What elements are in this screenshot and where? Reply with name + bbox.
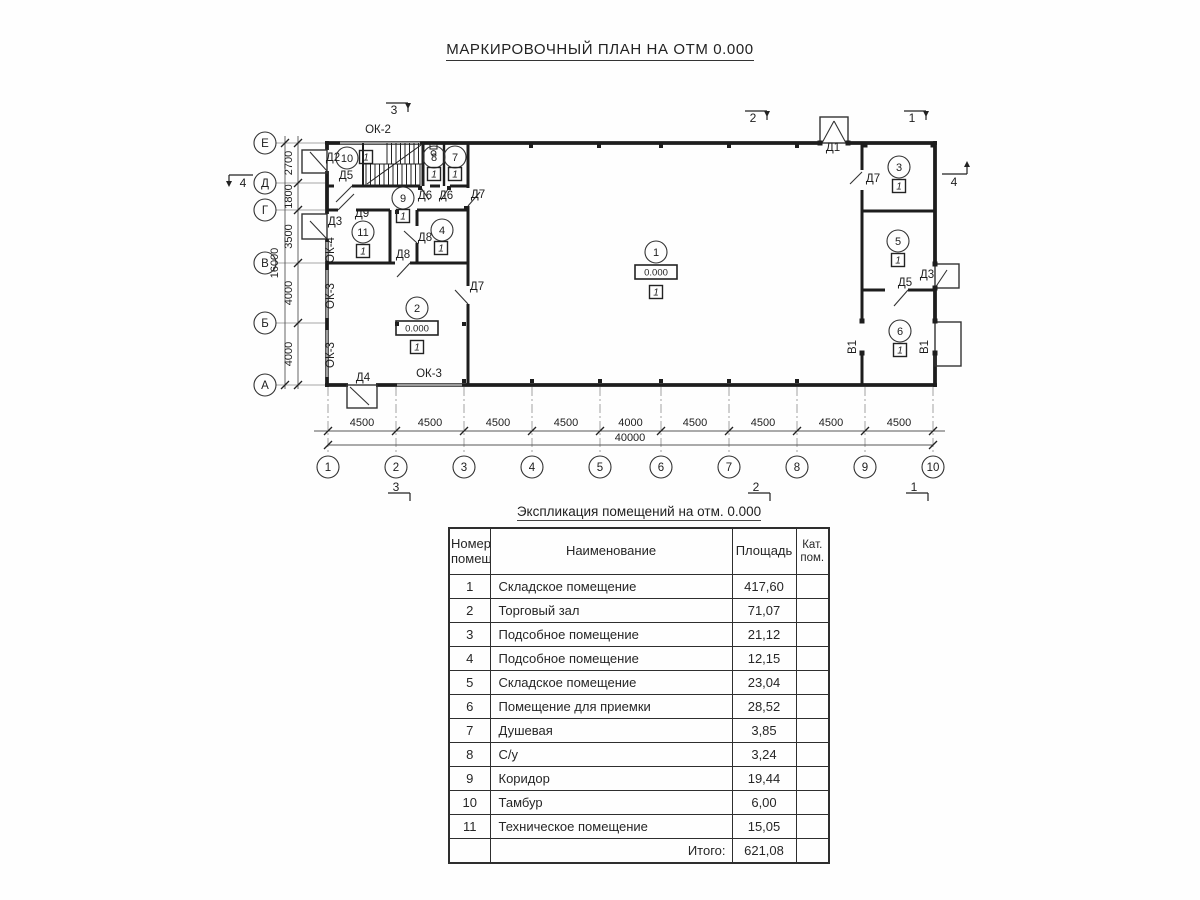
section-mark-arrow	[923, 111, 929, 117]
cell-room-area: 3,85	[732, 719, 796, 743]
section-mark-label: 1	[909, 111, 916, 125]
pilaster-mark	[529, 144, 533, 148]
room-number: 4	[439, 225, 445, 237]
dim-total-height: 16000	[269, 248, 281, 279]
cell-room-name: С/у	[490, 743, 732, 767]
door-label: Д1	[826, 142, 840, 154]
schedule-header-row: Номерпомещ.НаименованиеПлощадьКат.пом.	[449, 528, 829, 575]
section-mark-arrow	[764, 111, 770, 117]
cell-room-number: 9	[449, 767, 490, 791]
cell-room-number: 4	[449, 647, 490, 671]
cell-room-category	[796, 695, 829, 719]
section-mark-arrow	[964, 161, 970, 167]
door-label: Д3	[328, 216, 342, 228]
wall-jamb	[860, 319, 865, 324]
cell-room-category	[796, 815, 829, 839]
dim-label: 4000	[283, 281, 295, 305]
door-label: Д6	[439, 190, 453, 202]
col-axis-label: 3	[461, 462, 467, 474]
cell-room-area: 12,15	[732, 647, 796, 671]
cell-room-area: 21,12	[732, 623, 796, 647]
section-mark-arrow	[405, 103, 411, 109]
table-row: 4Подсобное помещение12,15	[449, 647, 829, 671]
wall-jamb	[931, 143, 936, 148]
door-label: Д7	[471, 189, 485, 201]
wall-jamb	[933, 286, 938, 291]
col-axis-label: 7	[726, 462, 732, 474]
table-row: 2Торговый зал71,07	[449, 599, 829, 623]
col-axis-label: 6	[658, 462, 664, 474]
dim-label: 3500	[283, 224, 295, 248]
table-row: 11Техническое помещение15,05	[449, 815, 829, 839]
schedule-title: Экспликация помещений на отм. 0.000	[448, 504, 830, 519]
room-number: 10	[341, 153, 353, 165]
schedule-header: Наименование	[490, 528, 732, 575]
door-label: Д3	[920, 269, 934, 281]
wall-jamb	[846, 141, 851, 146]
pilaster-mark	[659, 379, 663, 383]
cell-room-area: 71,07	[732, 599, 796, 623]
wall-jamb	[860, 351, 865, 356]
wall-jamb	[933, 351, 938, 356]
pilaster-mark	[462, 379, 466, 383]
table-row: 8С/у3,24	[449, 743, 829, 767]
room-marker: 1	[400, 212, 406, 223]
room-marker: 1	[431, 170, 437, 181]
cell-room-number: 6	[449, 695, 490, 719]
dim-label: 4500	[887, 417, 911, 429]
dim-label: 4500	[350, 417, 374, 429]
wall-jamb	[818, 141, 823, 146]
row-axis-label: Д	[261, 178, 269, 190]
cell-room-area: 417,60	[732, 575, 796, 599]
section-mark-label: 3	[391, 103, 398, 117]
col-axis-label: 9	[862, 462, 868, 474]
room-marker: 1	[360, 247, 366, 258]
col-axis-label: 5	[597, 462, 603, 474]
window-label: ОК-3	[325, 342, 337, 368]
room-number: 2	[414, 303, 420, 315]
door-label: Д7	[470, 281, 484, 293]
cell-room-area: 6,00	[732, 791, 796, 815]
table-total-row: Итого:621,08	[449, 839, 829, 864]
cell-room-name: Душевая	[490, 719, 732, 743]
cell-room-name: Подсобное помещение	[490, 647, 732, 671]
wall-jamb	[863, 143, 868, 148]
cell-room-category	[796, 575, 829, 599]
pilaster-mark	[727, 379, 731, 383]
window-label: ОК-3	[416, 368, 442, 380]
schedule-header: Площадь	[732, 528, 796, 575]
table-row: 10Тамбур6,00	[449, 791, 829, 815]
col-axis-label: 10	[927, 462, 940, 474]
dim-label: 4500	[819, 417, 843, 429]
cell-room-number: 2	[449, 599, 490, 623]
section-mark-label: 4	[951, 175, 958, 189]
cell-room-number: 10	[449, 791, 490, 815]
dim-label: 4500	[751, 417, 775, 429]
schedule-header: Кат.пом.	[796, 528, 829, 575]
pilaster-mark	[727, 144, 731, 148]
pilaster-mark	[795, 144, 799, 148]
drawing-sheet: МАРКИРОВОЧНЫЙ ПЛАН НА ОТМ 0.000	[0, 0, 1200, 900]
door-label: Д6	[418, 190, 432, 202]
col-axis-label: 2	[393, 462, 399, 474]
dim-label: 4500	[683, 417, 707, 429]
pilaster-mark	[530, 379, 534, 383]
cell-room-area: 28,52	[732, 695, 796, 719]
dim-label: 4500	[418, 417, 442, 429]
cell-room-area: 15,05	[732, 815, 796, 839]
row-axis-label: Б	[261, 318, 269, 330]
dim-label: 4000	[283, 342, 295, 366]
room-schedule: Экспликация помещений на отм. 0.000 Номе…	[448, 504, 830, 864]
cell-room-area: 3,24	[732, 743, 796, 767]
dim-label: 4500	[486, 417, 510, 429]
section-mark-label: 2	[753, 480, 760, 494]
cell-room-number: 7	[449, 719, 490, 743]
door-label: Д9	[355, 208, 369, 220]
table-row: 9Коридор19,44	[449, 767, 829, 791]
section-mark-label: 3	[393, 480, 400, 494]
dim-label: 2700	[283, 151, 295, 175]
room-number: 3	[896, 162, 902, 174]
row-axis-label: Г	[262, 205, 269, 217]
cell-empty	[449, 839, 490, 864]
cell-room-area: 19,44	[732, 767, 796, 791]
cell-total-label: Итого:	[490, 839, 732, 864]
cell-room-name: Техническое помещение	[490, 815, 732, 839]
pilaster-mark	[597, 144, 601, 148]
cell-room-number: 3	[449, 623, 490, 647]
door-label: Д5	[898, 277, 912, 289]
dim-label: 4500	[554, 417, 578, 429]
room-number: 8	[431, 152, 437, 164]
room-number: 5	[895, 236, 901, 248]
room-marker: 1	[896, 182, 902, 193]
table-row: 6Помещение для приемки28,52	[449, 695, 829, 719]
col-axis-label: 4	[529, 462, 536, 474]
cell-room-area: 23,04	[732, 671, 796, 695]
room-number: 6	[897, 326, 903, 338]
floor-plan: ЕДГВБА1234567891045004500450045004000450…	[0, 0, 1200, 520]
room-number: 7	[452, 152, 458, 164]
cell-room-name: Складское помещение	[490, 575, 732, 599]
room-marker: 1	[653, 288, 659, 299]
room-number: 9	[400, 193, 406, 205]
row-axis-label: В	[261, 258, 269, 270]
cell-room-category	[796, 647, 829, 671]
gate-label: В1	[919, 340, 931, 354]
cell-room-number: 11	[449, 815, 490, 839]
cell-room-category	[796, 623, 829, 647]
cell-total-area: 621,08	[732, 839, 796, 864]
cell-room-category	[796, 671, 829, 695]
cell-room-name: Помещение для приемки	[490, 695, 732, 719]
room-number: 1	[653, 247, 659, 259]
pilaster-mark	[659, 144, 663, 148]
cell-room-name: Торговый зал	[490, 599, 732, 623]
elevation-label: 0.000	[644, 268, 668, 279]
cell-room-name: Подсобное помещение	[490, 623, 732, 647]
table-row: 1Складское помещение417,60	[449, 575, 829, 599]
window-label: ОК-2	[365, 124, 391, 136]
dim-label: 4000	[618, 417, 642, 429]
room-marker: 1	[895, 256, 901, 267]
door-label: Д5	[339, 170, 353, 182]
window-label: ОК-3	[325, 283, 337, 309]
pilaster-mark	[464, 206, 468, 210]
section-mark-label: 1	[911, 480, 918, 494]
room-marker: 1	[897, 346, 903, 357]
schedule-table: Номерпомещ.НаименованиеПлощадьКат.пом.1С…	[448, 527, 830, 864]
door-label: Д2	[326, 152, 340, 164]
table-row: 5Складское помещение23,04	[449, 671, 829, 695]
room-marker: 1	[438, 244, 444, 255]
cell-empty	[796, 839, 829, 864]
door-label: Д4	[356, 372, 371, 384]
pilaster-mark	[462, 322, 466, 326]
schedule-header: Номерпомещ.	[449, 528, 490, 575]
col-axis-label: 1	[325, 462, 331, 474]
pilaster-mark	[795, 379, 799, 383]
cell-room-name: Складское помещение	[490, 671, 732, 695]
room-number: 11	[357, 227, 368, 239]
elevation-label: 0.000	[405, 324, 429, 335]
cell-room-category	[796, 743, 829, 767]
room-marker: 1	[414, 343, 420, 354]
table-row: 7Душевая3,85	[449, 719, 829, 743]
room-marker: 1	[452, 170, 458, 181]
cell-room-name: Тамбур	[490, 791, 732, 815]
schedule-title-text: Экспликация помещений на отм. 0.000	[517, 504, 761, 521]
cell-room-number: 1	[449, 575, 490, 599]
cell-room-category	[796, 719, 829, 743]
cell-room-number: 8	[449, 743, 490, 767]
cell-room-number: 5	[449, 671, 490, 695]
cell-room-category	[796, 767, 829, 791]
row-axis-label: Е	[261, 138, 269, 150]
wall-jamb	[933, 262, 938, 267]
window-label: ОК-4	[325, 236, 337, 262]
room-marker: 1	[363, 153, 369, 164]
cell-room-category	[796, 791, 829, 815]
section-mark-label: 4	[240, 176, 247, 190]
section-mark-label: 2	[750, 111, 757, 125]
section-mark-arrow	[226, 181, 232, 187]
door-label: Д7	[866, 173, 880, 185]
door-label: Д8	[396, 249, 410, 261]
col-axis-label: 8	[794, 462, 800, 474]
wall-jamb	[933, 319, 938, 324]
row-axis-label: А	[261, 380, 269, 392]
pilaster-mark	[598, 379, 602, 383]
cell-room-name: Коридор	[490, 767, 732, 791]
cell-room-category	[796, 599, 829, 623]
dim-total-width: 40000	[615, 432, 646, 444]
dim-label: 1800	[283, 184, 295, 208]
gate-label: В1	[847, 340, 859, 354]
door-label: Д8	[418, 232, 432, 244]
table-row: 3Подсобное помещение21,12	[449, 623, 829, 647]
